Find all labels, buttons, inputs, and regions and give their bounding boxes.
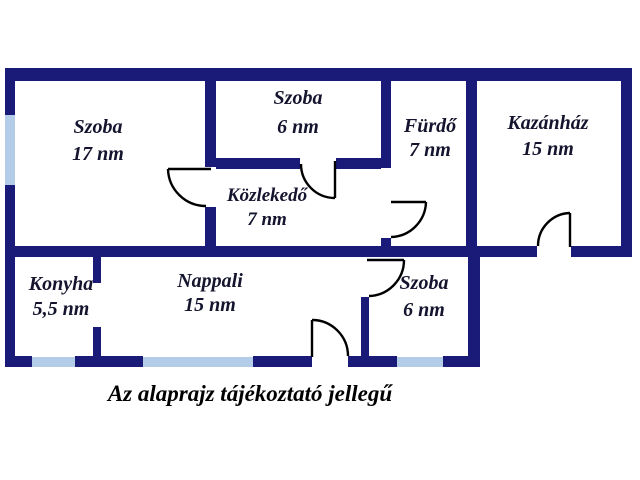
room-area: 15 nm [486,136,610,162]
door-symbols [0,0,640,480]
room-label-kozlekedo: Közlekedő 7 nm [205,184,329,232]
door-arc-szoba17 [168,169,206,206]
door-arc-nappali-entry [312,320,348,356]
room-area: 6 nm [240,113,356,142]
door-arc-kazanhaz [538,213,570,246]
room-area: 17 nm [38,141,158,168]
room-name: Kazánház [507,112,588,134]
room-name: Fürdő [404,115,456,137]
floor-plan: Szoba 17 nm Szoba 6 nm Fürdő 7 nm Kazánh… [0,0,640,480]
room-label-furdo: Fürdő 7 nm [372,114,488,162]
room-area: 5,5 nm [8,297,114,322]
room-label-konyha: Konyha 5,5 nm [8,272,114,322]
room-label-nappali: Nappali 15 nm [148,269,272,317]
room-label-szoba17: Szoba 17 nm [38,114,158,168]
room-name: Konyha [29,273,93,295]
disclaimer-caption: Az alaprajz tájékoztató jellegű [70,381,430,407]
room-label-szoba6-bottom: Szoba 6 nm [366,270,482,324]
door-arc-furdo [391,202,426,237]
room-name: Nappali [177,270,243,292]
room-area: 7 nm [372,138,488,162]
room-name: Szoba [400,272,449,294]
room-name: Közlekedő [227,185,307,206]
room-area: 6 nm [366,297,482,324]
room-area: 15 nm [148,293,272,317]
room-name: Szoba [274,87,323,109]
room-label-szoba6-top: Szoba 6 nm [240,84,356,142]
room-area: 7 nm [205,208,329,232]
room-label-kazanhaz: Kazánház 15 nm [486,110,610,162]
room-name: Szoba [74,116,123,138]
